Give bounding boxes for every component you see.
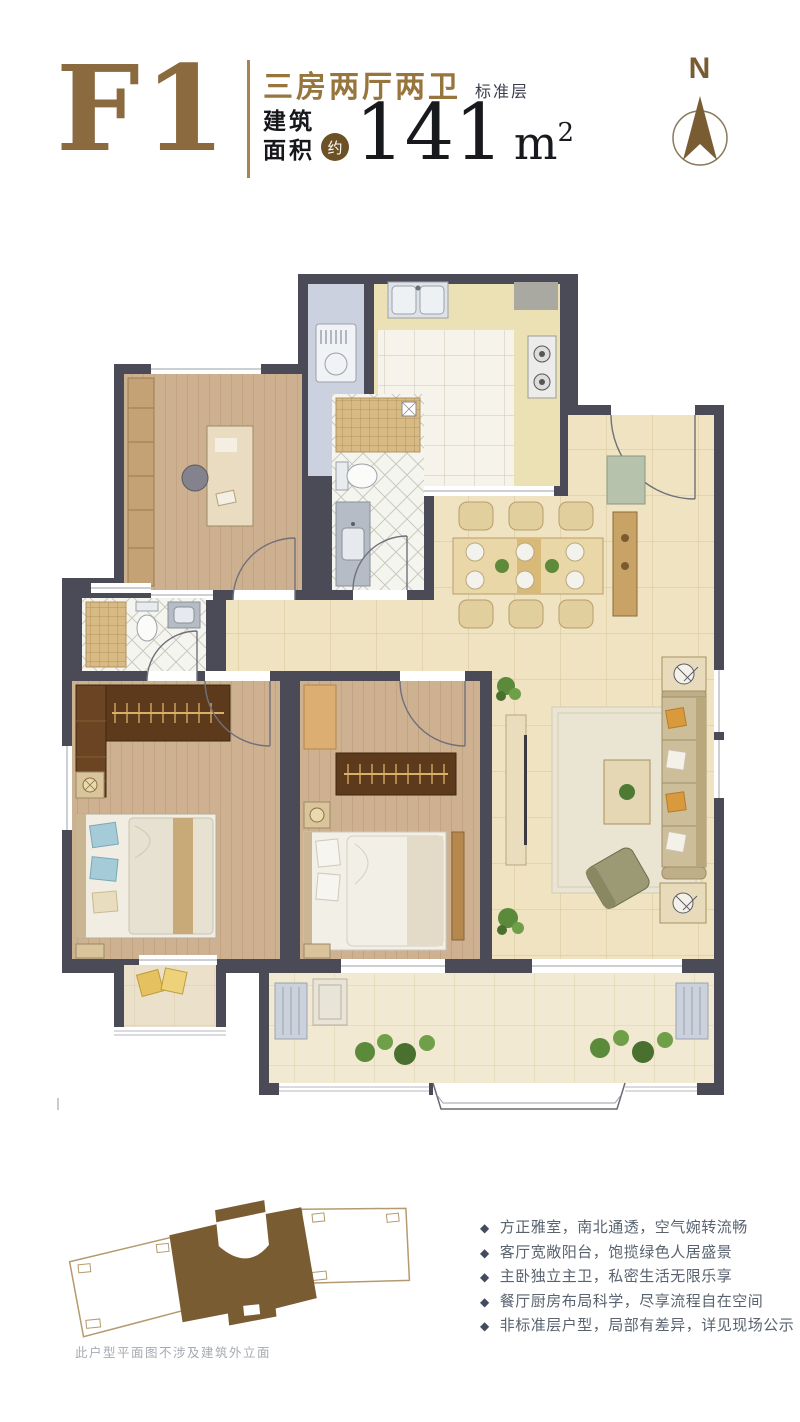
small-balcony-railing: [114, 1027, 226, 1039]
lamp-icon: [310, 808, 324, 822]
diamond-bullet-icon: ◆: [480, 1221, 490, 1235]
dining-chair-icon: [459, 600, 493, 628]
bath2-door-gap: [147, 671, 197, 681]
side-table-icon: [660, 883, 706, 923]
small-balcony: [114, 965, 226, 1039]
sideboard-icon: [607, 456, 645, 504]
study-wardrobe: [128, 378, 154, 586]
bedroom-1: [62, 671, 280, 965]
table-plant-icon: [495, 559, 509, 573]
tv-cabinet-icon: [506, 715, 526, 865]
stove-icon: [528, 336, 556, 398]
north-label: N: [660, 52, 740, 86]
kitchen-sink-icon: [388, 282, 448, 318]
wardrobe-icon: [336, 753, 456, 795]
cushion-icon: [161, 968, 187, 994]
feature-item: ◆主卧独立主卫，私密生活无限乐享: [480, 1265, 794, 1290]
area-row: 建筑 面积 约 141 m2: [263, 100, 574, 166]
ac-unit-icon: [275, 983, 307, 1039]
north-compass: N: [660, 52, 740, 183]
feature-item: ◆非标准层户型，局部有差异，详见现场公示: [480, 1314, 794, 1339]
vanity-sink-icon: [336, 502, 370, 586]
toilet-icon: [336, 462, 377, 490]
floor-plan-drawing: [55, 266, 745, 1118]
area-superscript: 2: [558, 118, 575, 148]
desk-chair-icon: [182, 465, 208, 491]
approx-badge: 约: [321, 133, 349, 161]
area-value: 141: [355, 100, 504, 166]
table-plant-icon: [545, 559, 559, 573]
unit-code: F1: [56, 46, 230, 171]
bay-window: [433, 1083, 625, 1109]
feature-item: ◆客厅宽敞阳台，饱揽绿色人居盛景: [480, 1241, 794, 1266]
bedroom1-door-gap: [205, 671, 270, 681]
feature-item: ◆餐厅厨房布局科学，尽享流程自在空间: [480, 1290, 794, 1315]
nightstand-icon: [76, 944, 104, 958]
sofa-icon: [662, 689, 706, 879]
bedroom-2: [300, 671, 480, 973]
feature-list: ◆方正雅室，南北通透，空气婉转流畅 ◆客厅宽敞阳台，饱揽绿色人居盛景 ◆主卧独立…: [480, 1216, 794, 1339]
feature-item: ◆方正雅室，南北通透，空气婉转流畅: [480, 1216, 794, 1241]
site-plan: [55, 1186, 425, 1346]
balcony-cabinet-icon: [313, 979, 347, 1025]
study-room: [124, 364, 302, 600]
kitchen-counter: [514, 282, 558, 310]
dining-chair-icon: [509, 600, 543, 628]
plant-icon: [619, 784, 635, 800]
diamond-bullet-icon: ◆: [480, 1319, 490, 1333]
tv-icon: [524, 735, 527, 845]
floorplan-poster: F1 三房两厅两卫标准层 建筑 面积 约 141 m2 N: [0, 0, 800, 1422]
bath1-door-gap: [353, 590, 407, 600]
diamond-bullet-icon: ◆: [480, 1246, 490, 1260]
nightstand-icon: [304, 944, 330, 958]
dining-chair-icon: [509, 502, 543, 530]
dining-chair-icon: [459, 502, 493, 530]
bed-bench-icon: [452, 832, 464, 940]
dining-chair-icon: [559, 600, 593, 628]
site-plan-drawing: [55, 1186, 425, 1346]
toilet-icon: [136, 602, 158, 641]
study-door-gap: [233, 590, 295, 600]
bedroom2-door-gap: [400, 671, 465, 681]
bed-icon: [304, 832, 446, 950]
sink-icon: [168, 602, 200, 628]
diamond-bullet-icon: ◆: [480, 1295, 490, 1309]
balcony-railing-window: [279, 1083, 429, 1095]
ac-unit-icon: [676, 983, 708, 1039]
stray-mark: [57, 1098, 59, 1110]
site-plan-disclaimer: 此户型平面图不涉及建筑外立面: [75, 1342, 271, 1361]
gold-divider: [247, 60, 250, 178]
floor-plan: [55, 266, 745, 1118]
dining-chair-icon: [559, 502, 593, 530]
balcony: [269, 973, 714, 1109]
bed-icon: [76, 814, 216, 938]
corner-desk-icon: [304, 685, 336, 749]
bathroom-1: [332, 394, 424, 600]
area-label: 建筑 面积: [263, 107, 315, 167]
diamond-bullet-icon: ◆: [480, 1270, 490, 1284]
north-arrow-icon: [660, 86, 740, 178]
highlighted-unit: [167, 1196, 319, 1331]
side-table-icon: [662, 657, 706, 691]
area-unit: m2: [514, 120, 574, 166]
